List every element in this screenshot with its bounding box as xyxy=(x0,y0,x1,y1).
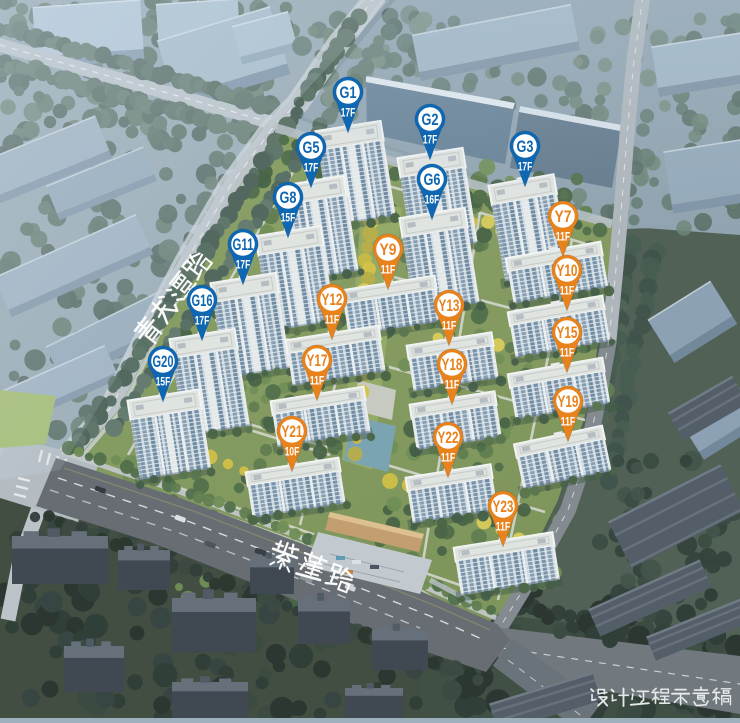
svg-text:G20: G20 xyxy=(153,352,174,371)
svg-text:G5: G5 xyxy=(303,138,320,157)
svg-text:Y18: Y18 xyxy=(442,355,463,374)
svg-text:17F: 17F xyxy=(341,108,356,120)
svg-text:11F: 11F xyxy=(310,376,325,388)
svg-text:Y12: Y12 xyxy=(322,290,343,309)
svg-text:G16: G16 xyxy=(192,291,213,310)
svg-text:Y10: Y10 xyxy=(557,261,578,280)
svg-text:11F: 11F xyxy=(496,522,511,534)
svg-text:G6: G6 xyxy=(424,170,441,189)
svg-text:15F: 15F xyxy=(281,213,296,225)
svg-text:15F: 15F xyxy=(156,377,171,389)
svg-text:Y19: Y19 xyxy=(558,392,579,411)
svg-text:17F: 17F xyxy=(236,260,251,272)
svg-text:Y15: Y15 xyxy=(557,323,578,342)
svg-text:16F: 16F xyxy=(425,195,440,207)
svg-text:11F: 11F xyxy=(560,286,575,298)
svg-text:17F: 17F xyxy=(423,135,438,147)
svg-text:Y21: Y21 xyxy=(282,422,303,441)
svg-text:G8: G8 xyxy=(280,188,297,207)
svg-text:10F: 10F xyxy=(285,447,300,459)
svg-text:11F: 11F xyxy=(325,315,340,327)
svg-text:11F: 11F xyxy=(445,380,460,392)
svg-text:G11: G11 xyxy=(233,235,254,254)
svg-text:11F: 11F xyxy=(561,417,576,429)
svg-text:11F: 11F xyxy=(381,265,396,277)
svg-text:Y17: Y17 xyxy=(307,351,328,370)
svg-text:G1: G1 xyxy=(340,83,357,102)
svg-text:17F: 17F xyxy=(195,316,210,328)
svg-text:11F: 11F xyxy=(442,321,457,333)
svg-text:Y23: Y23 xyxy=(493,497,514,516)
svg-text:11F: 11F xyxy=(560,348,575,360)
svg-text:11F: 11F xyxy=(441,453,456,465)
svg-text:Y13: Y13 xyxy=(439,296,460,315)
svg-text:11F: 11F xyxy=(556,232,571,244)
svg-text:Y9: Y9 xyxy=(380,240,397,259)
svg-text:G3: G3 xyxy=(517,137,534,156)
svg-text:17F: 17F xyxy=(304,163,319,175)
svg-text:G2: G2 xyxy=(422,110,439,129)
svg-text:Y7: Y7 xyxy=(555,207,572,226)
svg-text:17F: 17F xyxy=(518,162,533,174)
svg-text:Y22: Y22 xyxy=(438,428,459,447)
